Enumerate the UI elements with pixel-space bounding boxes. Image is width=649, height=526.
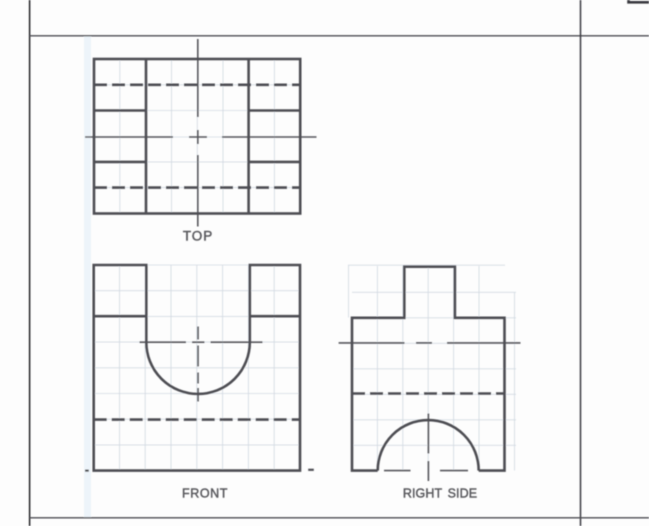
svg-text:FRONT: FRONT [182, 487, 228, 501]
svg-text:RIGHT SIDE: RIGHT SIDE [403, 487, 477, 501]
svg-text:TOP: TOP [183, 229, 213, 244]
